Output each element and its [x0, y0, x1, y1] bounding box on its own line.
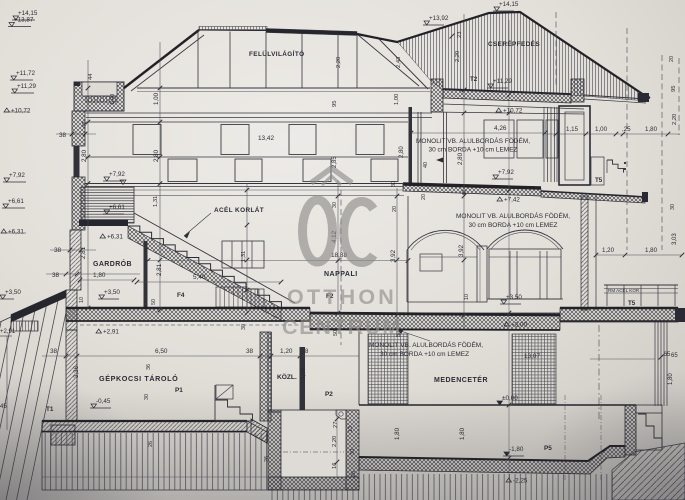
svg-text:+7,92: +7,92: [109, 171, 125, 178]
svg-text:27: 27: [333, 422, 339, 428]
svg-text:+6,31: +6,31: [8, 229, 24, 236]
svg-text:2,43: 2,43: [396, 57, 402, 68]
svg-text:+11,29: +11,29: [493, 78, 512, 85]
svg-text:1,00: 1,00: [153, 92, 160, 105]
svg-text:3,92: 3,92: [458, 244, 465, 257]
svg-text:23: 23: [457, 32, 463, 38]
svg-text:40: 40: [82, 122, 88, 128]
svg-text:38: 38: [59, 132, 67, 139]
svg-text:30: 30: [350, 449, 356, 455]
svg-text:95: 95: [332, 101, 338, 107]
svg-text:30 cm BORDA +10 cm LEMEZ: 30 cm BORDA +10 cm LEMEZ: [428, 147, 517, 154]
svg-text:CSERÉPFEDÉS: CSERÉPFEDÉS: [488, 39, 540, 48]
svg-text:30: 30: [332, 202, 338, 208]
svg-text:2,80: 2,80: [81, 149, 88, 162]
svg-text:2,80: 2,80: [457, 152, 464, 165]
svg-text:13: 13: [348, 426, 354, 432]
svg-text:+7,92: +7,92: [9, 172, 25, 179]
svg-text:1,80: 1,80: [645, 126, 658, 133]
svg-text:+10,72: +10,72: [503, 108, 523, 115]
svg-text:1,80: 1,80: [645, 247, 658, 254]
svg-text:+14,15: +14,15: [499, 1, 519, 8]
svg-text:38: 38: [54, 247, 62, 254]
svg-text:+6,31: +6,31: [107, 234, 123, 241]
svg-text:,25: ,25: [622, 126, 631, 133]
svg-text:MONOLIT VB. ALULBORDÁS FÖDÉM,: MONOLIT VB. ALULBORDÁS FÖDÉM,: [456, 211, 570, 220]
svg-text:1,15: 1,15: [566, 126, 579, 133]
svg-text:P2: P2: [325, 391, 333, 398]
svg-text:MONOLIT VB. ALULBORDÁS FÖDÉM,: MONOLIT VB. ALULBORDÁS FÖDÉM,: [416, 136, 530, 145]
svg-text:+11,29: +11,29: [17, 83, 36, 90]
svg-text:+13,87: +13,87: [14, 16, 34, 23]
svg-text:2,80: 2,80: [153, 149, 160, 162]
svg-text:26: 26: [351, 471, 357, 477]
svg-text:40: 40: [423, 162, 429, 168]
svg-text:20: 20: [392, 206, 398, 212]
svg-text:+6,61: +6,61: [109, 204, 125, 211]
svg-text:1,00: 1,00: [394, 94, 400, 105]
svg-text:T2: T2: [470, 76, 478, 83]
svg-text:40: 40: [462, 190, 468, 196]
svg-text:1,31: 1,31: [153, 196, 159, 207]
svg-text:1,20: 1,20: [602, 247, 615, 254]
svg-text:1,00: 1,00: [595, 126, 608, 133]
svg-text:2,20: 2,20: [455, 51, 461, 62]
svg-text:+6,61: +6,61: [8, 198, 24, 205]
svg-text:FELÜLVILÁGÍTÓ: FELÜLVILÁGÍTÓ: [249, 49, 305, 58]
svg-text:3,03: 3,03: [300, 367, 307, 380]
svg-text:20: 20: [421, 194, 427, 200]
svg-text:T5: T5: [595, 177, 603, 184]
svg-text:2,20: 2,20: [672, 114, 678, 125]
svg-text:3,03: 3,03: [672, 233, 678, 245]
svg-text:+7,92: +7,92: [498, 169, 514, 176]
svg-text:2,81: 2,81: [80, 246, 87, 259]
svg-text:ACÉL KORLÁT: ACÉL KORLÁT: [214, 205, 264, 214]
svg-text:1,00: 1,00: [110, 94, 116, 105]
svg-text:2,80: 2,80: [399, 146, 405, 158]
svg-text:+11,72: +11,72: [16, 70, 35, 77]
svg-text:OTTHON: OTTHON: [287, 285, 397, 309]
svg-text:4,26: 4,26: [494, 125, 507, 132]
svg-text:+7,42: +7,42: [504, 197, 520, 204]
svg-text:44: 44: [88, 73, 94, 80]
svg-text:30: 30: [670, 204, 676, 210]
svg-text:20: 20: [669, 56, 675, 62]
svg-text:2,20: 2,20: [336, 57, 342, 68]
svg-text:+13,92: +13,92: [429, 15, 449, 22]
svg-text:13,42: 13,42: [258, 135, 274, 142]
svg-text:+10,72: +10,72: [11, 108, 31, 115]
svg-text:30 cm BORDA +10 cm LEMEZ: 30 cm BORDA +10 cm LEMEZ: [468, 222, 557, 229]
svg-text:95: 95: [671, 86, 677, 92]
svg-text:30: 30: [391, 181, 397, 187]
